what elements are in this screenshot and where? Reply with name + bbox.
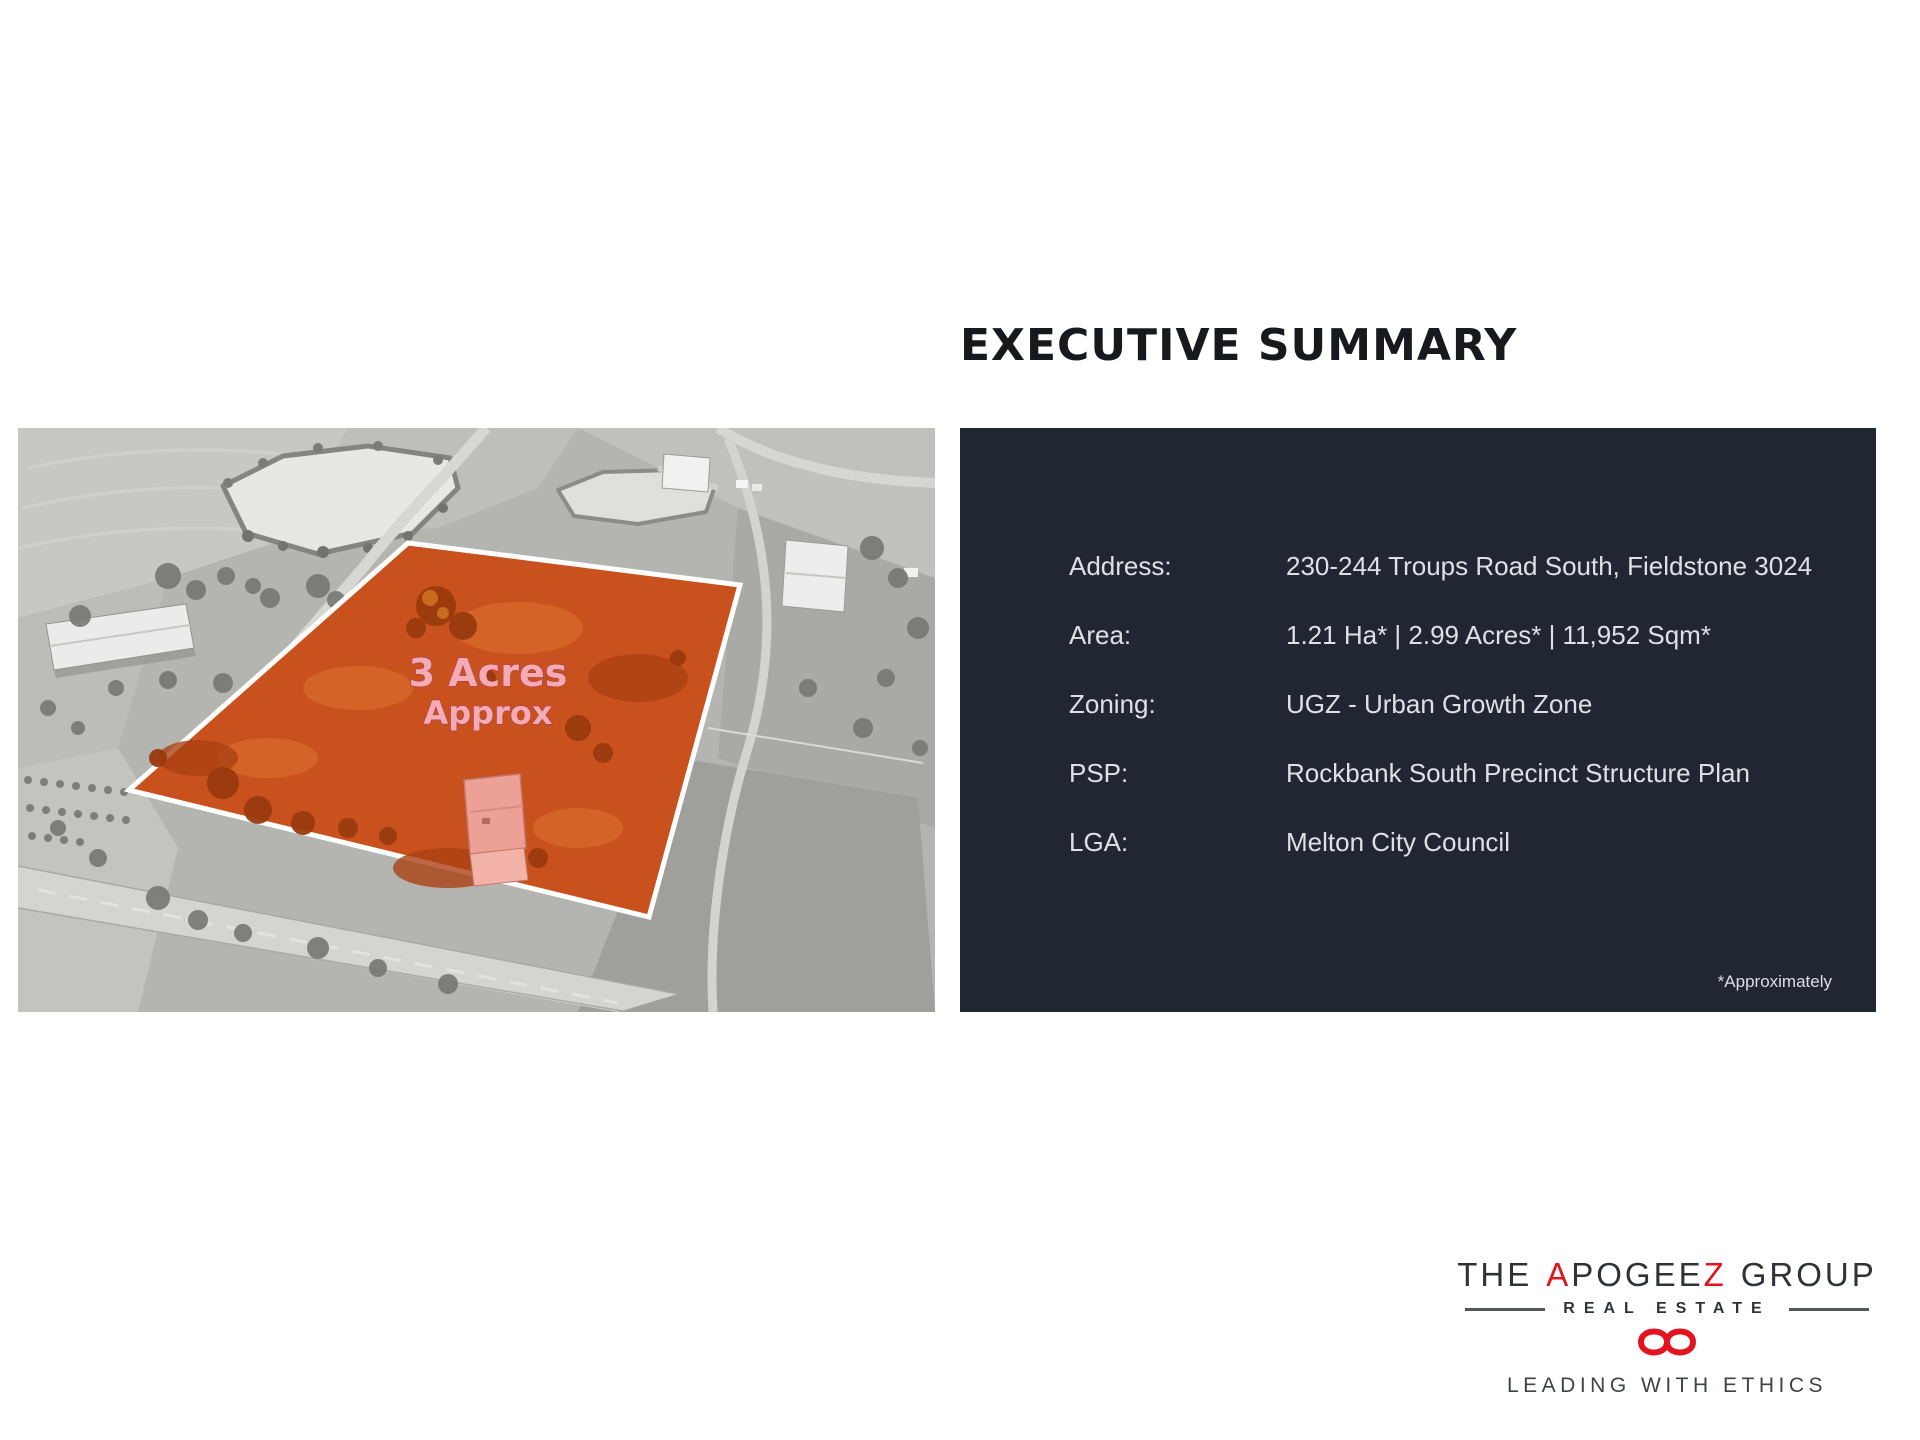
- logo-subtitle-row: REAL ESTATE: [1465, 1300, 1868, 1318]
- logo-letter-z-red: Z: [1704, 1256, 1727, 1293]
- logo-word-group: GROUP: [1741, 1256, 1877, 1293]
- aerial-photo-canvas: 3 Acres Approx: [18, 428, 935, 1012]
- logo-letters-pogee: POGEE: [1571, 1256, 1703, 1293]
- address-label: Address:: [1069, 550, 1286, 583]
- logo-rule-left: [1465, 1308, 1545, 1311]
- logo-subtitle: REAL ESTATE: [1563, 1300, 1770, 1318]
- summary-row-lga: LGA: Melton City Council: [1069, 826, 1836, 859]
- logo-rule-right: [1789, 1308, 1869, 1311]
- house: [464, 774, 528, 886]
- lga-label: LGA:: [1069, 826, 1286, 859]
- aerial-photo: 3 Acres Approx: [18, 428, 935, 1012]
- brand-logo: THEAPOGEEZGROUP REAL ESTATE LEADING WITH…: [1452, 1256, 1882, 1398]
- summary-row-psp: PSP: Rockbank South Precinct Structure P…: [1069, 757, 1836, 790]
- logo-tagline: LEADING WITH ETHICS: [1507, 1374, 1827, 1398]
- parcel-label-line2: Approx: [424, 694, 553, 732]
- parcel-label: 3 Acres Approx: [409, 651, 568, 732]
- logo-wordmark: THEAPOGEEZGROUP: [1457, 1256, 1877, 1294]
- executive-summary-panel: Address: 230-244 Troups Road South, Fiel…: [960, 428, 1876, 1012]
- slide: EXECUTIVE SUMMARY: [0, 0, 1920, 1440]
- area-value: 1.21 Ha* | 2.99 Acres* | 11,952 Sqm*: [1286, 619, 1836, 652]
- infinity-icon: [1633, 1320, 1701, 1364]
- summary-rows: Address: 230-244 Troups Road South, Fiel…: [1069, 550, 1836, 895]
- logo-word-the: THE: [1457, 1256, 1532, 1293]
- parcel-label-line1: 3 Acres: [409, 651, 568, 695]
- area-label: Area:: [1069, 619, 1286, 652]
- psp-label: PSP:: [1069, 757, 1286, 790]
- summary-row-address: Address: 230-244 Troups Road South, Fiel…: [1069, 550, 1836, 583]
- summary-row-area: Area: 1.21 Ha* | 2.99 Acres* | 11,952 Sq…: [1069, 619, 1836, 652]
- psp-value: Rockbank South Precinct Structure Plan: [1286, 757, 1836, 790]
- summary-row-zoning: Zoning: UGZ - Urban Growth Zone: [1069, 688, 1836, 721]
- logo-letter-a-red: A: [1546, 1256, 1571, 1293]
- address-value: 230-244 Troups Road South, Fieldstone 30…: [1286, 550, 1836, 583]
- approximately-footnote: *Approximately: [1718, 972, 1832, 992]
- lga-value: Melton City Council: [1286, 826, 1836, 859]
- zoning-value: UGZ - Urban Growth Zone: [1286, 688, 1836, 721]
- page-title: EXECUTIVE SUMMARY: [960, 320, 1517, 371]
- zoning-label: Zoning:: [1069, 688, 1286, 721]
